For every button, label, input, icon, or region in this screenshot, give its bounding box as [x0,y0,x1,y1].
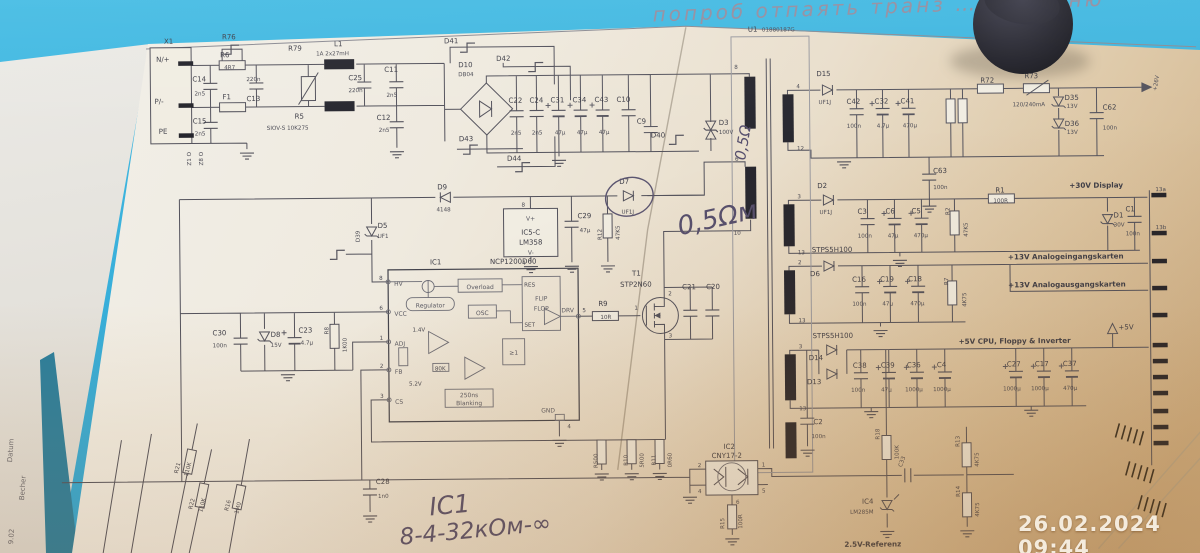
svg-text:STPS5H100: STPS5H100 [813,332,854,340]
svg-text:FLOP: FLOP [534,305,549,312]
svg-text:C21: C21 [682,283,696,291]
svg-text:UF1J: UF1J [819,210,832,216]
svg-text:4K75: 4K75 [975,502,981,517]
svg-text:2: 2 [798,260,802,266]
capacitor-c33 [905,468,911,482]
resistor-r8 [330,324,339,348]
svg-text:VCC: VCC [394,311,407,318]
inductor-l1-bottom [325,101,355,111]
svg-text:470µ: 470µ [910,301,925,307]
svg-text:10: 10 [734,231,742,237]
capacitor-c3 [861,219,875,225]
svg-text:100R: 100R [993,198,1008,204]
svg-text:8: 8 [521,203,525,209]
label: C15 [193,117,207,125]
label: D10 [458,61,472,69]
svg-text:4: 4 [567,424,571,430]
label: C34 [572,96,586,104]
svg-text:4148: 4148 [436,207,451,213]
svg-text:Overload: Overload [466,284,494,291]
svg-text:5: 5 [762,489,766,495]
svg-text:4R7: 4R7 [224,65,235,71]
svg-text:4K75: 4K75 [975,452,981,467]
svg-text:R9: R9 [598,300,607,308]
diode-d6 [824,261,834,271]
label: N/+ [156,56,170,64]
bridge-rectifier-d10 [460,83,512,135]
svg-text:13V: 13V [1067,130,1078,136]
ground [363,516,377,522]
svg-text:3: 3 [799,344,803,350]
svg-text:IC5-C: IC5-C [521,229,540,237]
mosfet-t1 [642,297,678,333]
svg-text:R15: R15 [720,517,726,528]
svg-text:100n: 100n [811,434,826,440]
svg-text:3: 3 [380,394,384,400]
capacitor-c38 [854,373,868,379]
svg-text:100R: 100R [738,514,744,529]
svg-text:D2: D2 [817,182,827,190]
svg-text:C37: C37 [1063,360,1077,368]
svg-text:Regulator: Regulator [416,302,446,309]
svg-text:C2: C2 [813,418,822,426]
label: U1 [748,26,758,34]
label: C24 [529,96,543,104]
rail-label-30v: +30V Display [1069,180,1123,189]
fuse-r73 [1023,80,1049,95]
ground [725,539,739,545]
svg-text:6: 6 [379,306,383,312]
resistor-r72 [977,84,1003,93]
svg-text:470µ: 470µ [1063,386,1078,392]
label: D5 [378,222,388,230]
svg-text:C30: C30 [213,329,227,337]
label: D42 [496,55,510,63]
svg-text:3: 3 [797,194,801,200]
photo-of-schematic: Datum Becher 9.02 [0,0,1200,553]
svg-text:SIOV-S 10K275: SIOV-S 10K275 [267,126,309,132]
ground [595,474,609,480]
svg-text:R13: R13 [955,435,961,446]
svg-text:R18: R18 [875,428,881,439]
capacitor-c11 [389,82,403,88]
diode-d15 [822,85,832,95]
label: C12 [377,114,391,122]
svg-text:C63: C63 [933,167,947,175]
fuse-f1 [220,103,246,112]
handwriting-ohm: 0,5Ωм [675,195,760,242]
svg-text:2n5: 2n5 [195,131,206,137]
svg-text:C39: C39 [881,361,895,369]
svg-text:250ns: 250ns [460,392,478,399]
svg-text:8: 8 [379,276,383,282]
diode-d5 [365,227,379,238]
label: C14 [192,75,206,83]
svg-text:100n: 100n [1126,231,1141,237]
capacitor-c21 [683,310,697,316]
svg-text:C13: C13 [246,95,260,103]
svg-text:IC1: IC1 [430,258,441,266]
svg-text:≥1: ≥1 [509,350,518,357]
svg-text:4.7µ: 4.7µ [301,341,314,347]
capacitor-c13 [249,83,263,89]
resistor-r74 [946,99,955,123]
secondary-winding [782,94,793,142]
ground [240,153,254,159]
svg-text:5.2V: 5.2V [409,382,422,388]
svg-text:5R00: 5R00 [640,453,646,468]
svg-text:13: 13 [799,406,807,412]
label: Z1 O [187,151,193,165]
svg-text:C18: C18 [908,275,922,283]
svg-text:R16: R16 [224,499,233,512]
svg-text:C29: C29 [577,212,591,220]
varistor-r5 [298,72,318,104]
svg-text:C27: C27 [1007,360,1021,368]
wires-secondary-caps [856,87,1136,411]
label: X1 [164,38,173,46]
svg-text:47µ: 47µ [555,130,566,136]
rail-label-13v-in: +13V Analogeingangskarten [1008,251,1124,261]
capacitor-c34 [568,103,588,117]
svg-text:FLIP: FLIP [535,295,548,302]
jumper-d39 [330,250,345,259]
svg-text:C16: C16 [852,276,866,284]
svg-text:CNY17-2: CNY17-2 [712,452,742,460]
ground [960,531,974,537]
svg-text:0R60: 0R60 [668,452,674,467]
svg-text:100n: 100n [933,185,948,191]
label: R6 [220,51,230,59]
label: P/- [154,98,164,106]
label: C31 [550,96,564,104]
svg-text:47K5: 47K5 [964,222,970,237]
svg-text:100V: 100V [719,130,734,136]
ground [281,375,295,381]
label: D44 [507,155,522,163]
secondary-winding [783,204,794,246]
svg-text:6: 6 [736,500,740,506]
svg-text:R72: R72 [980,77,994,85]
capacitor-c28 [363,489,377,495]
wires-bottom-left [101,423,250,553]
svg-text:C4: C4 [937,361,947,369]
svg-text:DRV: DRV [561,307,575,314]
zener-d1 [1101,215,1115,226]
svg-text:12: 12 [797,146,804,152]
wires-input [191,46,571,169]
svg-text:RES: RES [524,283,535,289]
label: C10 [616,96,630,104]
handwriting-measure: 8-4-32кОм-∞ [398,510,552,550]
svg-text:C41: C41 [901,97,915,105]
svg-text:CS: CS [395,399,403,406]
svg-text:C5: C5 [911,207,920,215]
svg-text:R500: R500 [594,453,600,468]
svg-text:D13: D13 [807,378,821,386]
svg-text:100K: 100K [895,445,901,460]
capacitor-c24 [530,110,544,116]
svg-text:220n: 220n [348,88,363,94]
paper-crease [614,27,690,470]
svg-text:1.4V: 1.4V [412,328,425,334]
svg-text:47µ: 47µ [577,130,588,136]
ground [880,531,894,537]
svg-text:2: 2 [668,291,672,297]
svg-text:4: 4 [698,489,702,495]
handwriting-ohm-vertical: 0,5Ω [731,123,755,161]
label: L1 [334,40,342,48]
label: 220n [246,77,261,83]
svg-text:D36: D36 [1065,120,1080,128]
svg-text:3: 3 [669,333,673,339]
resistor-r18 [882,435,891,459]
svg-text:R1: R1 [995,186,1004,194]
inductor-l1-top [324,59,354,69]
ground [552,160,566,166]
svg-text:80K: 80K [435,366,446,372]
svg-text:C6: C6 [885,207,895,215]
svg-text:C20: C20 [706,283,720,291]
svg-text:C23: C23 [298,327,312,335]
svg-text:13b: 13b [1156,225,1167,231]
label: D9 [437,183,447,191]
svg-text:4: 4 [522,261,526,267]
svg-text:2n5: 2n5 [379,128,390,134]
svg-text:1n0: 1n0 [378,494,389,500]
resistor-r13 [962,443,971,467]
zener-d8 [258,332,272,343]
label: Z8 O [199,151,205,165]
svg-text:FB: FB [395,369,403,376]
label: F1 [222,93,231,101]
svg-text:5: 5 [582,308,586,314]
svg-text:+26V: +26V [1153,75,1162,92]
ground [524,267,538,273]
svg-text:C28: C28 [376,478,390,486]
ground [683,497,697,503]
svg-text:13V: 13V [1067,104,1078,110]
ground [625,474,639,480]
svg-text:100n: 100n [852,302,867,308]
ic1-internals [386,276,581,422]
svg-text:10R: 10R [600,315,611,321]
svg-text:Blanking: Blanking [456,400,482,407]
camera-timestamp: 26.02.2024 09:44 [1018,512,1200,553]
resistor-r12 [603,214,612,238]
label: D40 [651,131,665,139]
capacitor-c22 [510,111,524,117]
svg-text:C17: C17 [1035,360,1049,368]
rail-label-13v-out: +13V Analogausgangskarten [1008,279,1126,289]
svg-text:DB04: DB04 [458,72,474,78]
ground [565,266,579,272]
svg-text:R7: R7 [944,277,950,285]
svg-text:100n: 100n [1103,125,1118,131]
label: PE [159,128,168,136]
secondary-winding [784,270,795,314]
svg-text:R2: R2 [945,207,951,215]
connector-stubs [1151,195,1168,443]
svg-text:UF1: UF1 [378,234,389,240]
capacitor-c30 [234,338,248,344]
svg-text:1000µ: 1000µ [933,387,951,393]
svg-text:4K75: 4K75 [962,292,968,307]
svg-text:2n5: 2n5 [511,131,522,137]
primary-winding [744,77,755,129]
svg-text:R22: R22 [188,498,197,510]
capacitor-c31 [546,103,566,117]
wires-dc [486,74,750,157]
svg-text:15V: 15V [271,343,282,349]
capacitor-c62 [1090,113,1104,119]
svg-text:NCP1200D60: NCP1200D60 [490,258,537,266]
diode-d7 [623,191,633,201]
svg-text:ADJ: ADJ [395,341,406,348]
ground [390,152,404,158]
svg-text:D8: D8 [271,331,281,339]
svg-text:D1: D1 [1114,211,1124,219]
svg-text:470µ: 470µ [903,123,918,129]
svg-text:13a: 13a [1155,187,1166,193]
label: D3 [719,119,729,127]
capacitor-c16 [855,287,869,293]
secondary-winding [785,422,796,458]
svg-text:2n5: 2n5 [386,93,397,99]
svg-text:1: 1 [762,463,766,469]
svg-text:R14: R14 [956,485,962,496]
svg-text:1000µ: 1000µ [1031,386,1049,392]
svg-text:4.7µ: 4.7µ [877,123,890,129]
svg-text:100n: 100n [858,234,873,240]
diode-d14 [827,345,837,355]
svg-text:1000µ: 1000µ [905,387,923,393]
svg-text:470µ: 470µ [914,233,929,239]
svg-text:C1: C1 [1125,205,1134,213]
svg-text:47µ: 47µ [599,130,610,136]
svg-text:SET: SET [524,323,535,329]
label: C11 [384,66,398,74]
svg-text:UF1J: UF1J [819,100,832,106]
resistor-r15 [728,505,737,529]
svg-text:+5V: +5V [1118,323,1133,331]
svg-text:STP2N60: STP2N60 [620,281,652,289]
diode-d13 [827,369,837,379]
svg-text:100n: 100n [213,343,228,349]
secondary-winding [785,354,796,400]
capacitor-c29 [565,221,579,227]
svg-text:2n5: 2n5 [194,91,205,97]
svg-text:LM285M: LM285M [850,510,874,516]
svg-text:IC2: IC2 [724,443,735,451]
label: R5 [295,113,304,121]
label: C25 [348,74,362,82]
svg-text:1: 1 [634,306,638,312]
svg-text:8: 8 [734,65,738,71]
svg-text:C36: C36 [907,361,921,369]
svg-text:1000µ: 1000µ [1003,386,1021,392]
svg-text:D35: D35 [1064,94,1078,102]
label: D43 [459,135,473,143]
zener-d36 [1052,119,1066,130]
svg-text:1: 1 [380,336,384,342]
svg-text:120/240mA: 120/240mA [1013,102,1046,108]
svg-text:HV: HV [394,281,404,288]
svg-text:1K00: 1K00 [343,337,349,352]
svg-text:T1: T1 [631,270,641,278]
capacitor-c20 [705,310,719,316]
svg-text:V-: V- [528,250,534,257]
plus5v-arrow [1107,323,1117,333]
svg-text:D6: D6 [810,270,820,278]
svg-text:D14: D14 [809,354,824,362]
label: D41 [444,37,458,45]
svg-text:C32: C32 [875,97,889,105]
label: R79 [288,45,302,53]
ground [601,266,615,272]
schematic-drawing: X1 N/+ P/- PE Z1 O Z8 O C142n5 C152n5 R7… [0,0,1200,553]
resistor-r75 [958,99,967,123]
svg-text:R12: R12 [598,229,604,240]
capacitor-c10 [622,110,636,116]
svg-text:STPS5H100: STPS5H100 [812,246,853,254]
output-arrow [1141,82,1152,92]
svg-text:2: 2 [698,463,702,469]
diode-d9 [440,192,450,202]
svg-text:C38: C38 [853,362,867,370]
svg-text:V+: V+ [526,216,535,223]
svg-text:R10: R10 [624,454,630,465]
jumper-d40 [669,135,684,144]
label: C9 [637,118,646,126]
capacitor-c1 [1128,216,1142,222]
resistor-r14 [962,493,971,517]
capacitor-c14 [203,83,217,89]
svg-text:01880187G: 01880187G [762,27,795,33]
ground [837,162,851,168]
capacitor-c42 [850,109,864,115]
svg-text:2n5: 2n5 [532,130,543,136]
svg-text:GND: GND [541,407,555,414]
svg-text:C19: C19 [880,275,894,283]
controller-ic1 [388,268,579,422]
svg-text:R11: R11 [652,454,658,465]
ground [922,206,936,212]
svg-text:13: 13 [798,318,806,324]
svg-text:30V: 30V [1114,222,1125,228]
svg-text:IC4: IC4 [862,498,874,506]
ground [552,440,566,446]
label-ref: 2.5V-Referenz [844,539,901,548]
svg-text:OSC: OSC [476,310,489,317]
ground [653,473,667,479]
svg-text:C42: C42 [847,98,861,106]
svg-text:R8: R8 [324,326,330,334]
label: D15 [816,70,830,78]
svg-text:C3: C3 [857,208,866,216]
svg-text:47K5: 47K5 [616,225,622,240]
capacitor-c12 [390,122,404,128]
ground [874,330,888,336]
svg-text:100n: 100n [847,124,862,130]
label: C22 [508,97,522,105]
svg-text:47µ: 47µ [881,387,892,393]
svg-text:LM358: LM358 [519,239,542,247]
svg-text:1A 2x27mH: 1A 2x27mH [316,51,349,57]
label: R76 [222,33,236,41]
svg-text:47µ: 47µ [882,301,893,307]
capacitor-c43 [590,102,610,116]
